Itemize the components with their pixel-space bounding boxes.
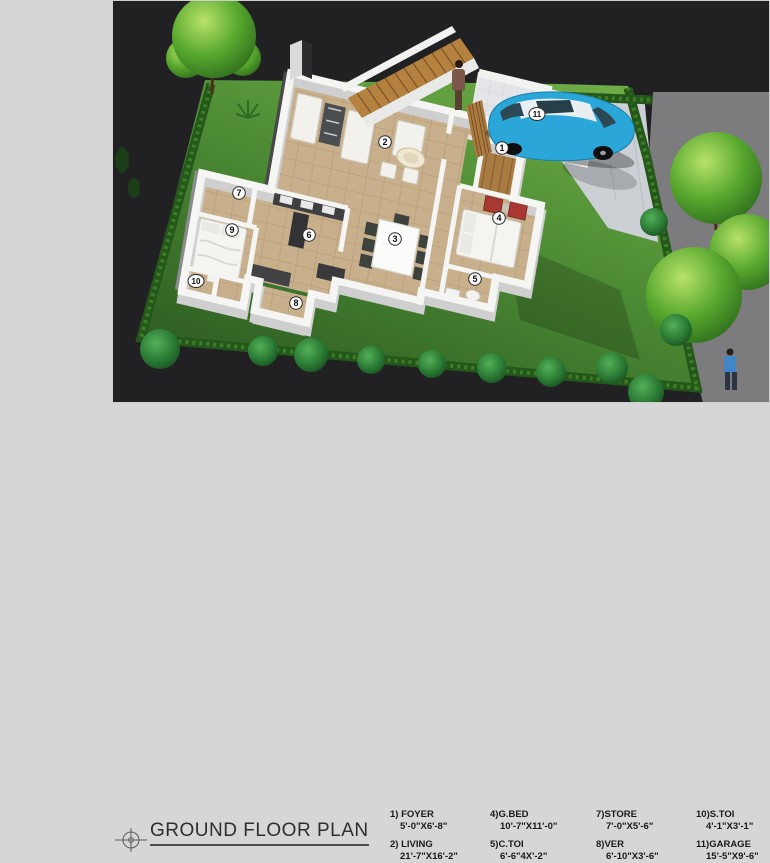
- svg-text:5: 5: [472, 274, 477, 284]
- badge-living: 2: [379, 136, 392, 149]
- badge-gbed: 4: [493, 212, 506, 225]
- scene-svg: 1 2 3 4 5 6 7 8 9 10 11: [0, 0, 770, 403]
- svg-text:11: 11: [533, 110, 542, 119]
- legend-item-living: 2) LIVING 21'-7"X16'-2": [390, 839, 490, 863]
- badge-garage: 11: [529, 108, 545, 121]
- legend-item-garage: 11)GARAGE 15'-5"X9'-6": [696, 839, 770, 863]
- svg-text:9: 9: [229, 225, 234, 235]
- svg-text:2: 2: [382, 137, 387, 147]
- badge-stoi: 10: [188, 275, 204, 288]
- legend-item-ver: 8)VER 6'-10"X3'-6": [596, 839, 696, 863]
- page-title: GROUND FLOOR PLAN: [150, 820, 369, 846]
- page: 1 2 3 4 5 6 7 8 9 10 11 GROUND FLOOR PLA…: [0, 0, 770, 470]
- badge-bed9: 9: [226, 224, 239, 237]
- badge-foyer: 1: [496, 142, 509, 155]
- svg-text:4: 4: [496, 213, 501, 223]
- legend-item-store: 7)STORE 7'-0"X5'-6": [596, 809, 696, 833]
- legend: 1) FOYER 5'-0"X6'-8" 2) LIVING 21'-7"X16…: [390, 809, 770, 863]
- badge-kitchen: 6: [303, 229, 316, 242]
- svg-text:3: 3: [392, 234, 397, 244]
- badge-store: 7: [233, 187, 246, 200]
- svg-text:8: 8: [293, 298, 298, 308]
- svg-text:10: 10: [192, 277, 201, 286]
- svg-text:6: 6: [306, 230, 311, 240]
- tall-wall-block: [290, 40, 312, 80]
- dining-table: [371, 219, 419, 276]
- badge-ver: 8: [290, 297, 303, 310]
- caption-bar: GROUND FLOOR PLAN 1) FOYER 5'-0"X6'-8" 2…: [0, 403, 770, 470]
- svg-text:7: 7: [236, 188, 241, 198]
- legend-item-gbed: 4)G.BED 10'-7"X11'-0": [490, 809, 596, 833]
- badge-ctoi: 5: [469, 273, 482, 286]
- floor-plan-3d-view: 1 2 3 4 5 6 7 8 9 10 11: [0, 0, 770, 403]
- compass-icon: [114, 823, 148, 857]
- legend-item-foyer: 1) FOYER 5'-0"X6'-8": [390, 809, 490, 833]
- legend-item-ctoi: 5)C.TOI 6'-6"4X'-2": [490, 839, 596, 863]
- badge-dining: 3: [389, 233, 402, 246]
- legend-item-stoi: 10)S.TOI 4'-1"X3'-1": [696, 809, 770, 833]
- svg-text:1: 1: [499, 143, 504, 153]
